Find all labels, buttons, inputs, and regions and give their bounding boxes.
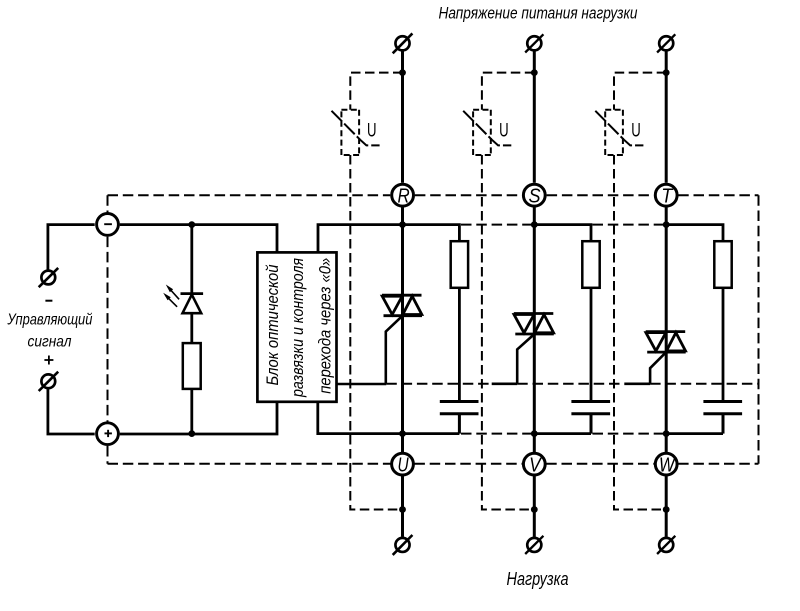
svg-text:U: U bbox=[367, 120, 377, 141]
svg-text:Блок оптической: Блок оптической bbox=[264, 265, 282, 386]
svg-text:Управляющий: Управляющий bbox=[7, 311, 93, 328]
svg-text:сигнал: сигнал bbox=[28, 333, 72, 350]
svg-text:W: W bbox=[659, 454, 676, 477]
svg-text:U: U bbox=[631, 120, 641, 141]
svg-text:S: S bbox=[529, 185, 541, 208]
svg-text:развязки и контроля: развязки и контроля bbox=[289, 258, 307, 398]
svg-text:T: T bbox=[661, 185, 674, 208]
svg-text:V: V bbox=[529, 454, 543, 477]
svg-text:R: R bbox=[398, 185, 410, 208]
svg-text:Нагрузка: Нагрузка bbox=[507, 569, 569, 589]
svg-text:U: U bbox=[499, 120, 509, 141]
svg-text:Напряжение питания нагрузки: Напряжение питания нагрузки bbox=[439, 5, 638, 23]
svg-text:U: U bbox=[398, 454, 409, 477]
svg-text:перехода через «0»: перехода через «0» bbox=[316, 258, 334, 394]
